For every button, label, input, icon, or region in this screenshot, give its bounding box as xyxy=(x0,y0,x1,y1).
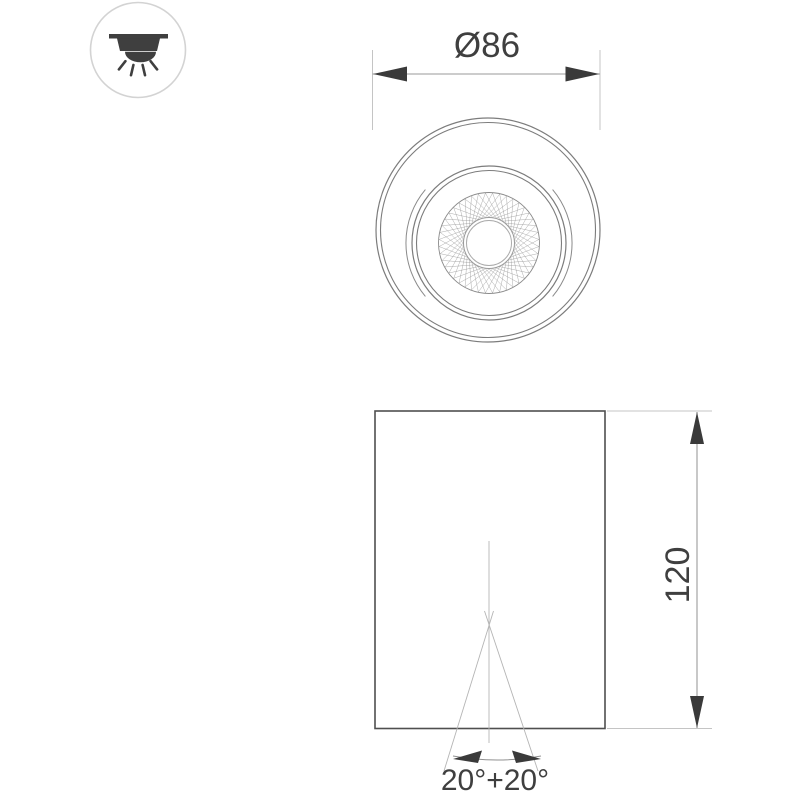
diameter-label: Ø86 xyxy=(387,27,587,65)
angle-dimension xyxy=(453,751,541,764)
gimbal-arc-right xyxy=(553,190,572,297)
arrowhead-down xyxy=(690,696,704,728)
ceiling-light-icon xyxy=(88,1,188,101)
lamp-body-outline xyxy=(375,411,605,729)
beam-angle-construction xyxy=(444,541,538,771)
arrowhead-left xyxy=(373,67,407,82)
arrowhead-right xyxy=(566,67,600,82)
beam-angle-label: 20°+20° xyxy=(395,764,595,798)
tilt-line-left xyxy=(444,611,494,771)
gimbal-arc-left xyxy=(406,190,425,297)
lamp-housing xyxy=(117,38,160,51)
technical-drawing: Ø86 120 20°+20° xyxy=(0,0,800,800)
ceiling-bar xyxy=(109,34,168,39)
front-view-body xyxy=(376,118,600,342)
led-ring-inner xyxy=(467,221,512,266)
tilt-line-right xyxy=(485,611,539,771)
arrowhead-up xyxy=(690,412,704,444)
lamp-front-view xyxy=(340,18,640,368)
height-label: 120 xyxy=(658,515,698,635)
